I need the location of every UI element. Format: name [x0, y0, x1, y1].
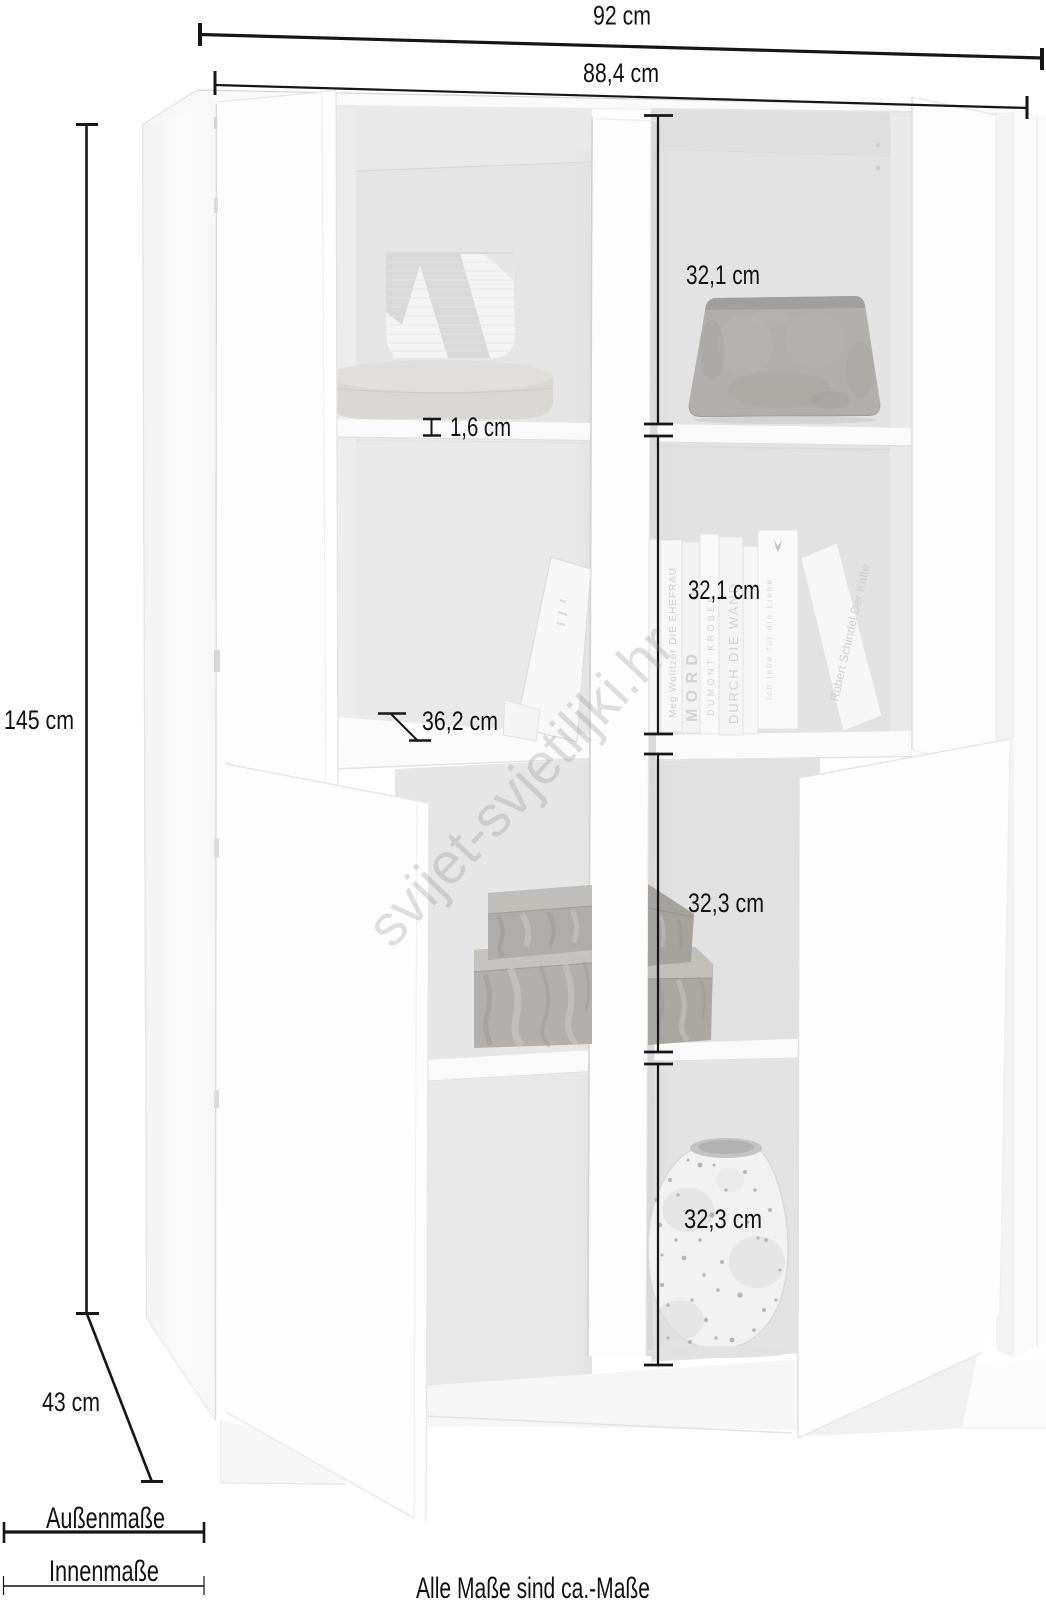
svg-text:145 cm: 145 cm — [4, 705, 74, 735]
svg-text:Innenmaße: Innenmaße — [49, 1555, 159, 1588]
svg-text:92 cm: 92 cm — [593, 1, 651, 31]
svg-text:32,1 cm: 32,1 cm — [688, 575, 760, 605]
svg-text:1,6 cm: 1,6 cm — [450, 412, 511, 442]
svg-text:32,1 cm: 32,1 cm — [686, 260, 760, 290]
svg-text:32,3 cm: 32,3 cm — [688, 888, 764, 918]
svg-text:Außenmaße: Außenmaße — [46, 1502, 165, 1535]
svg-text:Alle Maße sind ca.-Maße: Alle Maße sind ca.-Maße — [416, 1572, 650, 1600]
svg-text:36,2 cm: 36,2 cm — [422, 706, 498, 736]
svg-text:Ich lebe fur die Liebe: Ich lebe fur die Liebe — [765, 579, 774, 700]
svg-text:32,3 cm: 32,3 cm — [684, 1204, 762, 1234]
svg-text:88,4 cm: 88,4 cm — [583, 58, 659, 88]
svg-text:43 cm: 43 cm — [42, 1387, 100, 1417]
